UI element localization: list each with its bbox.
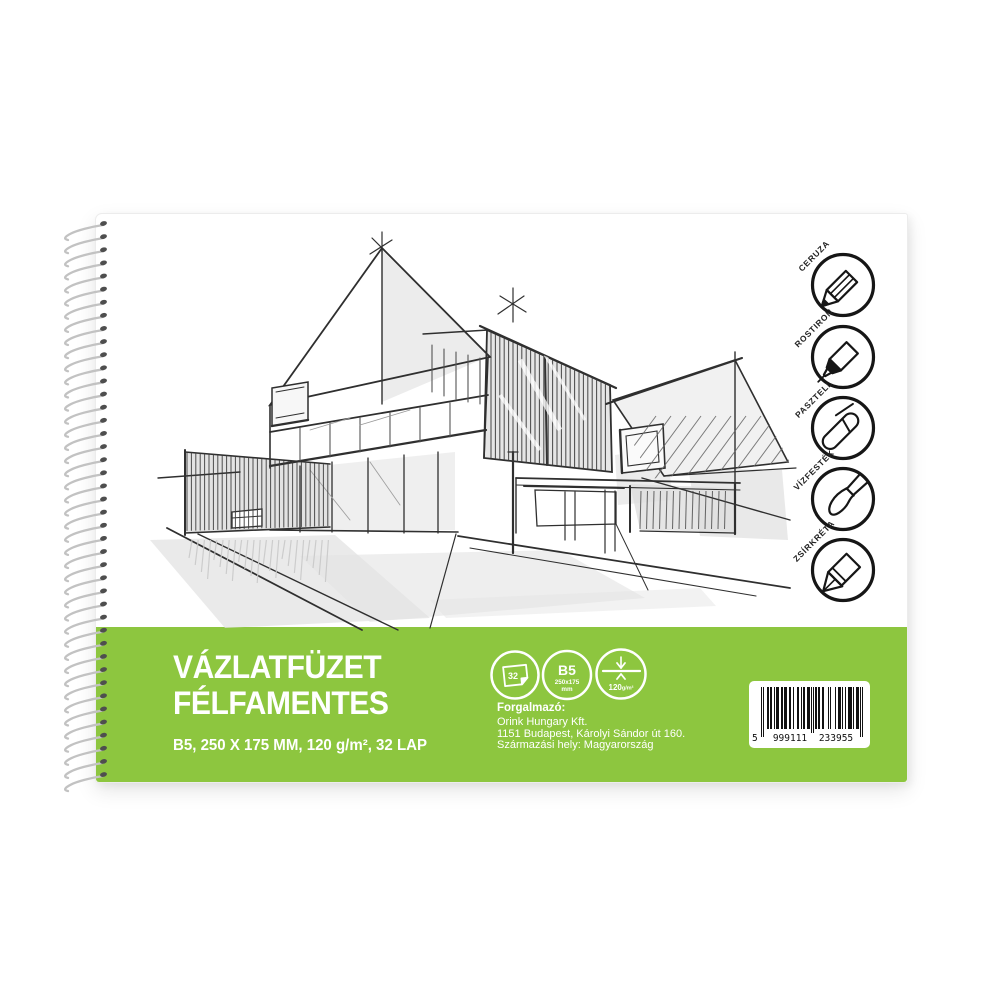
distributor-info: Forgalmazó: Orink Hungary Kft. 1151 Buda… <box>497 703 685 752</box>
product-image: CERUZA ROSTIRON PASZTELL VÍZFESTÉK ZSÍRK… <box>0 0 1000 1000</box>
barcode-digits: 5 999111 233955 <box>749 733 870 745</box>
barcode-digit-group2: 233955 <box>813 733 859 745</box>
barcode-digit-group1: 999111 <box>767 733 813 745</box>
product-specs-line: B5, 250 X 175 MM, 120 g/m², 32 LAP <box>173 737 427 755</box>
distributor-company: Orink Hungary Kft. <box>497 717 685 729</box>
product-title-line1: VÁZLATFÜZET <box>173 649 388 685</box>
barcode-digit-first: 5 <box>752 733 758 745</box>
barcode: 5 999111 233955 <box>749 681 870 748</box>
barcode-bars <box>761 687 863 739</box>
product-title-line2: FÉLFAMENTES <box>173 685 388 721</box>
distributor-heading: Forgalmazó: <box>497 703 685 715</box>
distributor-origin: Származási hely: Magyarország <box>497 740 685 752</box>
product-title: VÁZLATFÜZET FÉLFAMENTES <box>173 649 388 721</box>
